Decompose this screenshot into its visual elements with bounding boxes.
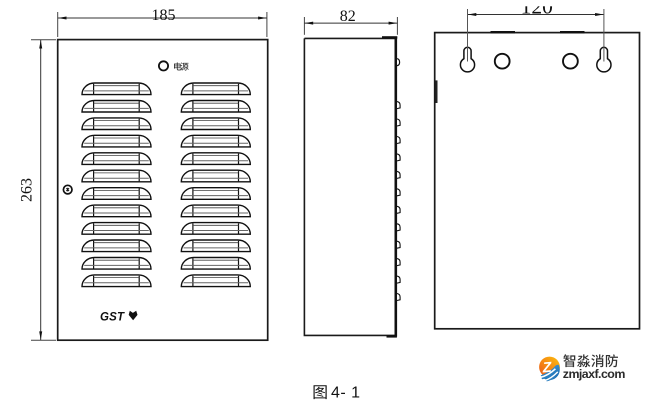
svg-text:82: 82 — [340, 8, 356, 25]
svg-text:263: 263 — [19, 178, 36, 202]
svg-text:4- 1: 4- 1 — [331, 384, 361, 401]
svg-text:zmjaxf.com: zmjaxf.com — [563, 367, 626, 381]
svg-text:185: 185 — [152, 7, 176, 24]
svg-text:GST: GST — [100, 312, 125, 324]
